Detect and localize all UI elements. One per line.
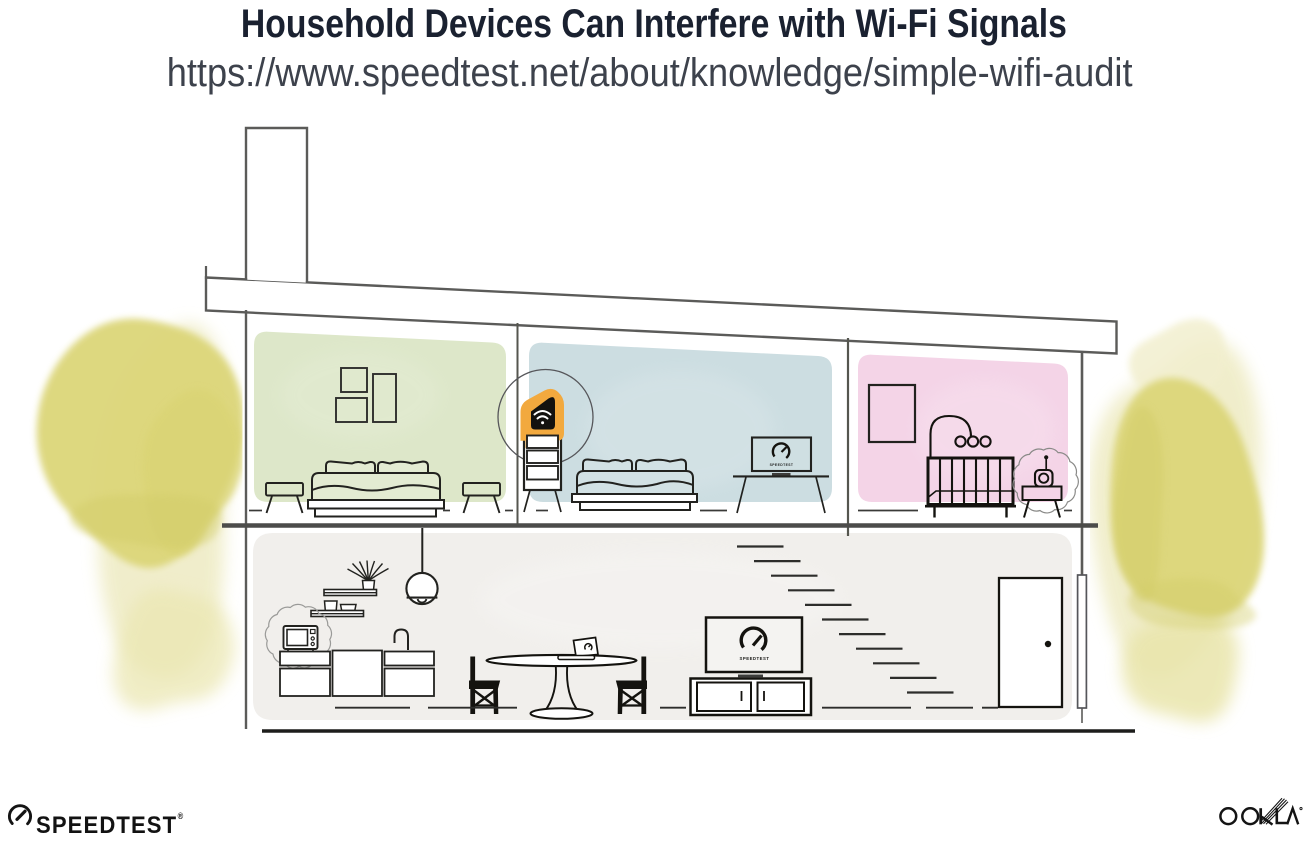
svg-text:SPEEDTEST: SPEEDTEST	[770, 463, 794, 467]
svg-text:SPEEDTEST: SPEEDTEST	[739, 656, 769, 661]
